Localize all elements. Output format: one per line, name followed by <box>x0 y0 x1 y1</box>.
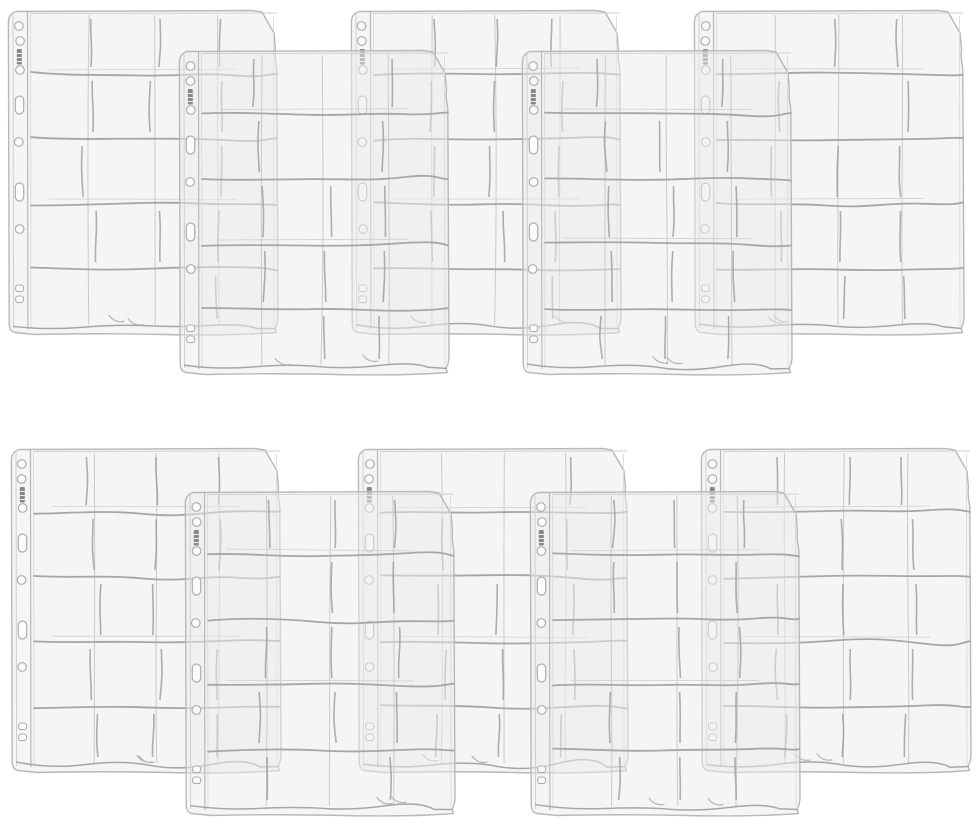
binder-slot-icon <box>18 534 26 552</box>
pocket-divider <box>840 211 841 262</box>
binder-slot-icon <box>15 183 23 201</box>
binder-hole-icon <box>708 460 717 469</box>
pocket-sheet <box>527 489 804 819</box>
binder-hole-icon <box>18 663 27 672</box>
pocket-divider <box>735 692 736 743</box>
sheet-outline <box>185 492 455 816</box>
sheet-outline <box>179 51 449 375</box>
pocket-sheet <box>176 48 453 378</box>
pocket-divider <box>665 316 666 359</box>
binder-hole-icon <box>16 66 25 75</box>
binder-hole-icon <box>17 475 26 484</box>
binder-hole-icon <box>537 547 546 556</box>
spine-brand-mark <box>20 487 25 503</box>
binder-hole-icon <box>537 619 546 628</box>
binder-microslot-icon <box>193 777 201 784</box>
pocket-divider <box>379 316 380 359</box>
pocket-divider <box>674 500 675 548</box>
pocket-sheet <box>519 48 796 378</box>
binder-hole-icon <box>186 62 195 71</box>
binder-hole-icon <box>187 106 196 115</box>
spine-brand-mark <box>194 530 199 546</box>
binder-hole-icon <box>15 225 24 234</box>
binder-microslot-icon <box>530 325 538 332</box>
binder-hole-icon <box>537 706 546 715</box>
binder-hole-icon <box>537 503 546 512</box>
binder-microslot-icon <box>16 296 24 303</box>
pocket-divider <box>331 627 332 678</box>
pocket-divider <box>728 316 729 359</box>
pocket-divider <box>843 584 844 635</box>
pocket-divider <box>91 19 92 67</box>
binder-microslot-icon <box>538 766 546 773</box>
binder-hole-icon <box>14 138 23 147</box>
pocket-divider <box>904 276 905 319</box>
binder-slot-icon <box>15 96 23 114</box>
pocket-divider <box>609 692 610 743</box>
binder-hole-icon <box>192 503 201 512</box>
binder-microslot-icon <box>19 723 27 730</box>
pocket-divider <box>850 649 851 700</box>
binder-hole-icon <box>366 460 375 469</box>
binder-hole-icon <box>192 547 201 556</box>
pocket-divider <box>331 186 332 237</box>
pocket-divider <box>901 457 902 505</box>
pocket-divider <box>608 186 609 237</box>
pocket-divider <box>680 757 681 800</box>
binder-slot-icon <box>192 664 200 682</box>
pocket-column-line <box>94 453 95 763</box>
binder-hole-icon <box>191 619 200 628</box>
binder-slot-icon <box>186 223 194 241</box>
binder-hole-icon <box>701 37 710 46</box>
pocket-column-line <box>156 453 157 763</box>
sheet-outline <box>530 492 800 816</box>
spine-brand-mark <box>539 530 544 546</box>
binder-slot-icon <box>18 621 26 639</box>
binder-hole-icon <box>529 106 538 115</box>
binder-hole-icon <box>538 518 547 527</box>
binder-microslot-icon <box>187 325 195 332</box>
binder-hole-icon <box>17 576 26 585</box>
binder-hole-icon <box>18 504 27 513</box>
binder-slot-icon <box>186 136 194 154</box>
pocket-column-line <box>504 453 505 763</box>
pocket-divider <box>611 251 612 302</box>
pocket-seam <box>545 309 791 310</box>
binder-microslot-icon <box>16 285 24 292</box>
binder-slot-icon <box>537 577 545 595</box>
pocket-sheet <box>182 489 459 819</box>
binder-hole-icon <box>186 77 195 86</box>
binder-hole-icon <box>16 37 25 46</box>
pocket-divider <box>393 562 394 613</box>
binder-microslot-icon <box>19 734 27 741</box>
pocket-divider <box>900 211 901 262</box>
spine-brand-mark <box>188 89 193 105</box>
binder-hole-icon <box>528 265 537 274</box>
pocket-divider <box>677 562 678 613</box>
pocket-divider <box>392 59 393 107</box>
binder-hole-icon <box>701 22 710 31</box>
binder-slot-icon <box>529 223 537 241</box>
binder-hole-icon <box>187 265 196 274</box>
sheet-outline <box>522 51 792 375</box>
pocket-divider <box>908 81 909 132</box>
binder-slot-icon <box>192 577 200 595</box>
binder-slot-icon <box>529 136 537 154</box>
binder-slot-icon <box>537 664 545 682</box>
binder-microslot-icon <box>530 336 538 343</box>
binder-microslot-icon <box>538 777 546 784</box>
pocket-divider <box>494 81 495 132</box>
product-photo <box>0 0 980 828</box>
spine-brand-mark <box>531 89 536 105</box>
pocket-divider <box>100 584 101 635</box>
pocket-divider <box>397 692 398 743</box>
pocket-divider <box>916 584 917 635</box>
binder-hole-icon <box>192 706 201 715</box>
binder-hole-icon <box>186 178 195 187</box>
binder-hole-icon <box>530 77 539 86</box>
spine-brand-mark <box>17 49 22 65</box>
binder-hole-icon <box>708 475 717 484</box>
pocket-divider <box>913 519 914 570</box>
pocket-divider <box>680 692 681 743</box>
binder-hole-icon <box>358 37 367 46</box>
pocket-divider <box>727 121 728 172</box>
pocket-divider <box>160 211 161 262</box>
binder-hole-icon <box>192 518 201 527</box>
binder-microslot-icon <box>187 336 195 343</box>
binder-microslot-icon <box>193 766 201 773</box>
pocket-divider <box>736 186 737 237</box>
binder-hole-icon <box>529 62 538 71</box>
pocket-divider <box>153 584 154 635</box>
pocket-divider <box>912 649 913 700</box>
binder-hole-icon <box>17 460 26 469</box>
binder-hole-icon <box>365 475 374 484</box>
binder-hole-icon <box>15 22 24 31</box>
binder-hole-icon <box>529 178 538 187</box>
pocket-divider <box>335 500 336 548</box>
binder-hole-icon <box>357 22 366 31</box>
pocket-divider <box>385 186 386 237</box>
